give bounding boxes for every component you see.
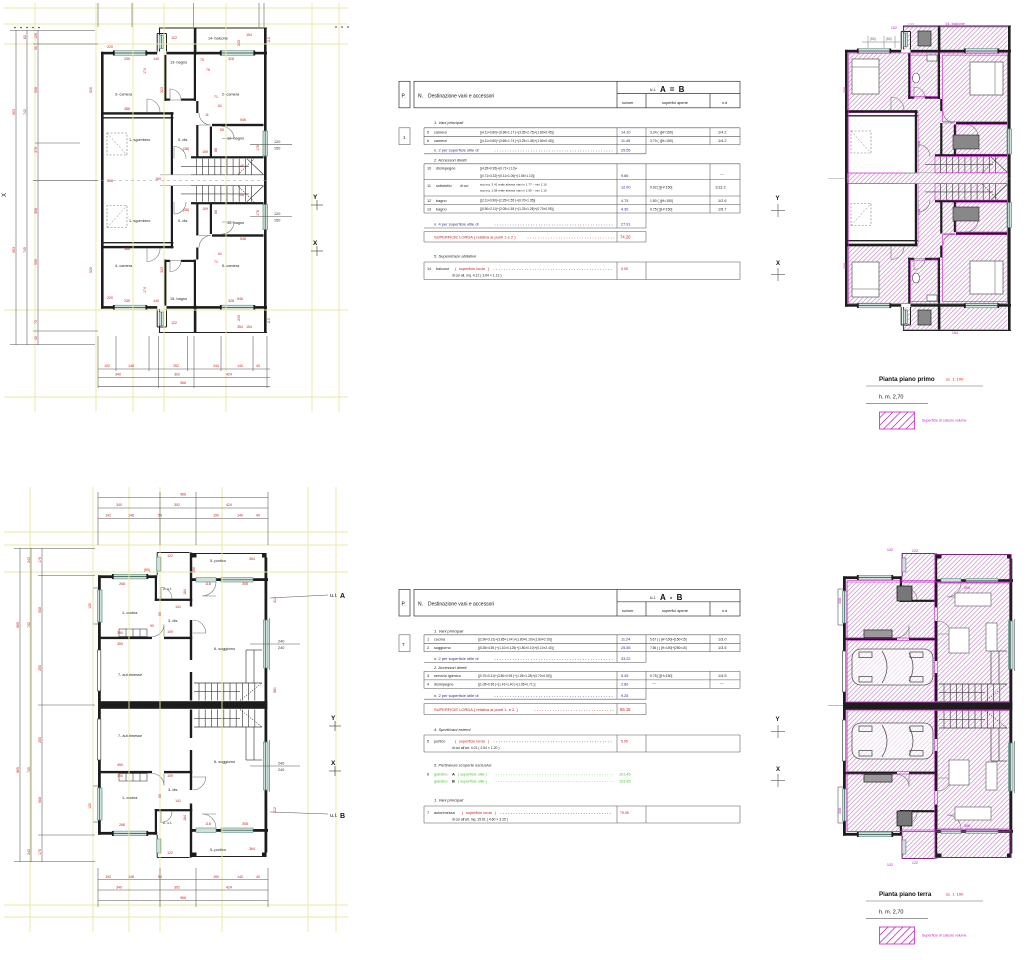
svg-text:[(5.35×4.55 )+(1.10×0.125)+(1.: [(5.35×4.55 )+(1.10×0.125)+(1.80×0.10)+(… xyxy=(478,646,554,650)
svg-text:5. Pertinenze scoperte esclusi: 5. Pertinenze scoperte esclusive xyxy=(434,763,492,768)
svg-text:358: 358 xyxy=(34,208,38,214)
svg-text:1. Vani principali: 1. Vani principali xyxy=(434,798,463,803)
svg-text:Superficie di calcolo volume: Superficie di calcolo volume xyxy=(922,419,967,423)
svg-text:75: 75 xyxy=(206,68,210,72)
svg-text:11: 11 xyxy=(205,113,209,117)
svg-text:12- bagno: 12- bagno xyxy=(227,221,244,225)
svg-text:N.: N. xyxy=(418,602,423,608)
svg-text:178: 178 xyxy=(256,210,260,216)
svg-text:0.75 [ ][H=150]: 0.75 [ ][H=150] xyxy=(650,207,672,211)
svg-text:1- sgombero: 1- sgombero xyxy=(129,138,150,142)
svg-text:7- aut.rimesse: 7- aut.rimesse xyxy=(118,734,142,738)
svg-text:Y: Y xyxy=(776,717,780,723)
svg-text:Destinazione vani e accesso: Destinazione vani e accessori xyxy=(428,93,494,99)
svg-text:di cui all. mq. 4.12 ( 3.64 ×: di cui all. mq. 4.12 ( 3.64 × 1.13 ) xyxy=(452,274,501,278)
svg-text:autorimessa: autorimessa xyxy=(434,811,456,815)
svg-text:[(4.11×0.80)+(3.65×1.74 )+(3.2: [(4.11×0.80)+(3.65×1.74 )+(3.25×1.45)+(1… xyxy=(480,139,554,143)
svg-text:5- portico: 5- portico xyxy=(210,559,226,563)
svg-text:sc. 1: 100: sc. 1: 100 xyxy=(946,892,964,897)
svg-text:140: 140 xyxy=(153,299,159,303)
svg-text:306: 306 xyxy=(964,586,970,590)
svg-text:camera: camera xyxy=(434,139,448,143)
svg-text:27.91: 27.91 xyxy=(621,223,631,227)
svg-text:122: 122 xyxy=(912,861,918,865)
svg-text:u.i.: u.i. xyxy=(330,813,338,819)
svg-text:508: 508 xyxy=(34,87,38,93)
svg-text:148: 148 xyxy=(128,875,134,879)
svg-text:150: 150 xyxy=(192,567,196,573)
svg-text:cucina: cucina xyxy=(434,638,446,642)
svg-text:450: 450 xyxy=(117,642,123,646)
svg-text:388: 388 xyxy=(124,247,130,251)
svg-text:1- cucina: 1- cucina xyxy=(122,611,138,615)
svg-text:74.20: 74.20 xyxy=(620,235,631,240)
svg-text:X: X xyxy=(776,261,780,267)
svg-text:1. Vani principali: 1. Vani principali xyxy=(434,629,463,634)
svg-text:308: 308 xyxy=(843,87,847,93)
svg-text:255: 255 xyxy=(38,665,42,671)
svg-text:390: 390 xyxy=(117,631,123,635)
svg-text:302: 302 xyxy=(174,503,180,507)
svg-text:302: 302 xyxy=(174,372,180,376)
svg-text:103.85: 103.85 xyxy=(619,779,631,783)
svg-text:N.: N. xyxy=(418,93,423,99)
svg-text:h. m. 2,70: h. m. 2,70 xyxy=(879,395,903,401)
svg-text:364: 364 xyxy=(249,847,255,851)
svg-text:174: 174 xyxy=(143,287,147,293)
svg-text:11: 11 xyxy=(427,184,431,188)
svg-text:742: 742 xyxy=(27,622,31,628)
svg-text:42: 42 xyxy=(34,336,38,340)
svg-text:camera: camera xyxy=(434,131,448,135)
svg-text:424: 424 xyxy=(226,503,232,507)
svg-text:235: 235 xyxy=(124,57,130,61)
svg-text:X: X xyxy=(313,240,318,247)
svg-text:102: 102 xyxy=(891,26,897,30)
svg-text:0- dis.: 0- dis. xyxy=(178,138,188,142)
svg-text:120: 120 xyxy=(88,603,92,609)
svg-text:4. Sporti/vani esterni: 4. Sporti/vani esterni xyxy=(434,727,471,732)
svg-text:[(0.70×0.11)+(3.80×0.95 )+(1.2: [(0.70×0.11)+(3.80×0.95 )+(1.25×1.28)+(0… xyxy=(478,674,552,678)
svg-text:1/13.2: 1/13.2 xyxy=(715,186,726,190)
svg-text:55: 55 xyxy=(220,128,224,132)
svg-text:54: 54 xyxy=(158,514,162,518)
svg-text:6: 6 xyxy=(427,773,429,777)
svg-text:508: 508 xyxy=(38,607,42,613)
svg-text:140: 140 xyxy=(237,364,243,368)
svg-text:243: 243 xyxy=(27,557,31,563)
svg-text:bagno: bagno xyxy=(436,207,447,211)
svg-text:122: 122 xyxy=(912,549,918,553)
svg-text:12.00: 12.00 xyxy=(621,186,631,190)
svg-text:235: 235 xyxy=(124,299,130,303)
svg-text:110: 110 xyxy=(267,318,271,324)
svg-text:14- balcone: 14- balcone xyxy=(945,22,965,26)
svg-text:[(0.90×2.11)+(2.05×1.55 )+(1.2: [(0.90×2.11)+(2.05×1.55 )+(1.23×1.28)+(0… xyxy=(480,207,554,211)
svg-text:A = B: A = B xyxy=(660,85,685,94)
svg-text:50: 50 xyxy=(34,46,38,50)
svg-text:1/5.7: 1/5.7 xyxy=(718,207,726,211)
svg-text:9.25: 9.25 xyxy=(621,694,628,698)
svg-text:u.i.: u.i. xyxy=(330,593,338,599)
svg-text:Y: Y xyxy=(331,715,336,722)
svg-text:508: 508 xyxy=(38,797,42,803)
svg-text:B: B xyxy=(452,778,455,783)
svg-text:25.55: 25.55 xyxy=(621,149,631,153)
svg-text:40: 40 xyxy=(256,364,260,368)
svg-text:X: X xyxy=(331,760,336,767)
svg-text:120: 120 xyxy=(274,140,280,144)
svg-text:2: 2 xyxy=(427,646,429,650)
svg-text:164: 164 xyxy=(952,331,958,335)
svg-text:190: 190 xyxy=(213,514,219,518)
svg-text:176: 176 xyxy=(38,849,42,855)
svg-text:328: 328 xyxy=(228,57,234,61)
svg-text:5.05: 5.05 xyxy=(621,267,628,271)
svg-text:745: 745 xyxy=(27,767,31,773)
svg-text:25.55: 25.55 xyxy=(621,646,631,650)
svg-text:546: 546 xyxy=(240,118,246,122)
svg-text:102: 102 xyxy=(887,863,893,867)
svg-text:5.05: 5.05 xyxy=(621,740,628,744)
svg-text:u.i.: u.i. xyxy=(650,87,656,92)
svg-text:soggiorno: soggiorno xyxy=(434,646,451,650)
svg-text:[(4.35×0.95)+(0.71×1.10)+: [(4.35×0.95)+(0.71×1.10)+ xyxy=(480,166,518,170)
svg-text:3- dis.: 3- dis. xyxy=(168,788,178,792)
svg-text:184: 184 xyxy=(183,815,187,821)
svg-text:1/4.2: 1/4.2 xyxy=(718,131,726,135)
svg-text:450: 450 xyxy=(117,763,123,767)
svg-text:240: 240 xyxy=(278,762,284,766)
svg-text:140: 140 xyxy=(237,514,243,518)
svg-text:354: 354 xyxy=(237,325,243,329)
svg-text:412: 412 xyxy=(273,597,277,603)
svg-text:328: 328 xyxy=(228,299,234,303)
svg-text:33.22: 33.22 xyxy=(621,657,631,661)
svg-text:122: 122 xyxy=(908,23,914,27)
svg-text:7.56 ( ) [H=150]+[250×15]: 7.56 ( ) [H=150]+[250×15] xyxy=(650,646,687,650)
svg-text:sup.mq. 3.41 reale altezza: sup.mq. 3.41 reale altezza max m 1.77 – … xyxy=(480,183,547,187)
svg-text:X: X xyxy=(2,193,8,197)
svg-text:378: 378 xyxy=(34,147,38,153)
svg-text:358: 358 xyxy=(107,179,113,183)
svg-text:745: 745 xyxy=(23,247,27,253)
svg-text:72: 72 xyxy=(34,320,38,324)
svg-text:giardino: giardino xyxy=(434,779,448,783)
svg-text:192: 192 xyxy=(105,875,111,879)
svg-text:178: 178 xyxy=(256,145,260,151)
svg-text:2- camera: 2- camera xyxy=(222,93,240,97)
svg-text:40: 40 xyxy=(256,875,260,879)
svg-text:90: 90 xyxy=(150,624,154,628)
svg-text:546: 546 xyxy=(240,237,246,241)
svg-text:61: 61 xyxy=(218,252,222,256)
svg-text:966: 966 xyxy=(180,381,186,385)
svg-text:n.d: n.d xyxy=(722,101,727,105)
svg-text:176: 176 xyxy=(38,557,42,563)
svg-text:268: 268 xyxy=(119,823,125,827)
svg-text:Pianta piano terra: Pianta piano terra xyxy=(879,891,932,898)
svg-text:n. 2 per superficie utile di: n. 2 per superficie utile di xyxy=(434,148,479,153)
svg-text:2- c.l.: 2- c.l. xyxy=(163,821,172,825)
svg-text:(50): (50) xyxy=(870,37,876,41)
svg-text:101.45: 101.45 xyxy=(619,773,631,777)
svg-text:SUPERFICIE LORDA ( relativa a: SUPERFICIE LORDA ( relativa ai punti 1. … xyxy=(434,707,518,712)
svg-text:14: 14 xyxy=(427,267,431,271)
svg-text:n.d: n.d xyxy=(722,609,727,613)
svg-text:109: 109 xyxy=(167,630,173,634)
svg-text:150: 150 xyxy=(274,147,280,151)
svg-text:Destinazione vani e accesso: Destinazione vani e accessori xyxy=(428,602,494,608)
svg-text:sottotetto: sottotetto xyxy=(436,184,452,188)
svg-text:7: 7 xyxy=(427,811,429,815)
svg-text:40: 40 xyxy=(256,514,260,518)
svg-text:742: 742 xyxy=(23,109,27,115)
svg-text:122: 122 xyxy=(171,321,177,325)
svg-text:192: 192 xyxy=(105,514,111,518)
svg-text:141: 141 xyxy=(175,799,181,803)
svg-text:P.: P. xyxy=(402,93,406,99)
svg-text:balcone: balcone xyxy=(436,267,449,271)
svg-text:122: 122 xyxy=(167,554,173,558)
svg-text:268: 268 xyxy=(119,582,125,586)
svg-text:6- soggiorno: 6- soggiorno xyxy=(214,647,235,651)
svg-text:su/smr: su/smr xyxy=(622,101,634,105)
svg-text:n. 2 per superficie utile di: n. 2 per superficie utile di xyxy=(434,656,479,661)
svg-text:superfici aperte: superfici aperte xyxy=(662,609,688,613)
svg-text:79.05: 79.05 xyxy=(620,811,629,815)
svg-text:340: 340 xyxy=(116,503,122,507)
svg-text:SUPERFICIE LORDA ( relativa a: SUPERFICIE LORDA ( relativa ai punti 1 e… xyxy=(434,235,516,240)
svg-text:150: 150 xyxy=(274,219,280,223)
svg-text:308: 308 xyxy=(838,808,842,814)
svg-text:154: 154 xyxy=(246,325,252,329)
svg-text:6- soggiorno: 6- soggiorno xyxy=(214,760,235,764)
svg-text:1/4.2: 1/4.2 xyxy=(718,139,726,143)
svg-text:148: 148 xyxy=(128,364,134,368)
svg-text:154: 154 xyxy=(246,33,252,37)
svg-text:5: 5 xyxy=(427,740,429,744)
svg-text:3- dis.: 3- dis. xyxy=(168,619,178,623)
svg-text:340: 340 xyxy=(116,886,122,890)
svg-text:di cui all'art. 4.01 ( 2.54 ×: di cui all'art. 4.01 ( 2.54 × 1.20 ) xyxy=(452,746,499,750)
svg-text:13: 13 xyxy=(427,207,431,211)
svg-text:663: 663 xyxy=(12,247,16,253)
svg-text:120: 120 xyxy=(274,212,280,216)
svg-text:Superficie di calcolo volume: Superficie di calcolo volume xyxy=(922,934,967,938)
svg-text:5- portico: 5- portico xyxy=(210,848,226,852)
svg-text:A - B: A - B xyxy=(660,593,683,602)
svg-text:240: 240 xyxy=(278,646,284,650)
svg-text:[(2.90×3.31)+(3.85×1.04 )+(1.8: [(2.90×3.31)+(3.85×1.04 )+(1.80×0.10)+(1… xyxy=(478,637,552,641)
svg-text:disimpegno: disimpegno xyxy=(434,683,453,687)
svg-text:118: 118 xyxy=(205,822,211,826)
svg-text:n. 2 per superficie utile di: n. 2 per superficie utile di xyxy=(434,693,479,698)
svg-text:servizio igienico: servizio igienico xyxy=(434,674,461,678)
svg-text:220: 220 xyxy=(107,296,113,300)
svg-text:X: X xyxy=(776,767,780,773)
svg-text:243: 243 xyxy=(27,849,31,855)
svg-text:55: 55 xyxy=(158,612,162,616)
svg-text:120: 120 xyxy=(88,803,92,809)
svg-text:B: B xyxy=(340,813,345,820)
svg-text:4: 4 xyxy=(427,683,429,687)
svg-text:3.24 ( )[H=150]: 3.24 ( )[H=150] xyxy=(650,131,673,135)
svg-text:364: 364 xyxy=(249,557,255,561)
svg-text:1/3.5: 1/3.5 xyxy=(718,646,726,650)
svg-text:(50): (50) xyxy=(144,568,150,572)
svg-text:bagno: bagno xyxy=(436,199,447,203)
svg-text:82: 82 xyxy=(23,35,27,39)
svg-text:546: 546 xyxy=(237,297,243,301)
svg-text:14.10: 14.10 xyxy=(621,131,631,135)
svg-text:88: 88 xyxy=(214,148,218,152)
svg-text:243: 243 xyxy=(237,315,241,321)
svg-text:109: 109 xyxy=(167,774,173,778)
svg-text:75: 75 xyxy=(200,58,204,62)
svg-text:0.92 [ ][H=150]: 0.92 [ ][H=150] xyxy=(650,186,672,190)
svg-text:superficie lorda: superficie lorda xyxy=(466,811,493,815)
svg-text:( superficie utile ): ( superficie utile ) xyxy=(458,779,488,783)
svg-text:12- bagno: 12- bagno xyxy=(227,137,244,141)
svg-text:di cui:: di cui: xyxy=(460,184,469,188)
svg-text:865: 865 xyxy=(16,622,20,628)
svg-text:110: 110 xyxy=(267,37,271,43)
svg-text:102: 102 xyxy=(104,364,110,368)
svg-text:1- sgombero: 1- sgombero xyxy=(129,219,150,223)
svg-text:308: 308 xyxy=(242,582,248,586)
svg-text:u.i.: u.i. xyxy=(650,595,656,600)
svg-text:0- dis.: 0- dis. xyxy=(178,219,188,223)
svg-text:[(4.11×0.80)+(3.96×1.17 )+(3.3: [(4.11×0.80)+(3.96×1.17 )+(3.35×2.75)+(1… xyxy=(480,130,554,134)
svg-text:174: 174 xyxy=(143,68,147,74)
svg-text:7- aut.rimesse: 7- aut.rimesse xyxy=(118,673,142,677)
svg-text:2.80: 2.80 xyxy=(621,683,628,687)
svg-text:1- cucina: 1- cucina xyxy=(122,796,138,800)
svg-text:3.70 ( )[H=150]: 3.70 ( )[H=150] xyxy=(650,139,673,143)
svg-text:5.67 ( ) [H=150]+[150×15]: 5.67 ( ) [H=150]+[150×15] xyxy=(650,638,687,642)
svg-text:102: 102 xyxy=(887,548,893,552)
svg-text:5.45: 5.45 xyxy=(621,674,628,678)
svg-text:portico: portico xyxy=(434,740,445,744)
svg-text:P.: P. xyxy=(402,602,406,608)
svg-text:308: 308 xyxy=(242,822,248,826)
svg-text:3- camera: 3- camera xyxy=(115,93,133,97)
svg-text:11.45: 11.45 xyxy=(621,139,630,143)
svg-text:sup.mq. 1.58 reale altezza: sup.mq. 1.58 reale altezza max m 1.90 – … xyxy=(480,189,547,193)
svg-text:[(1.05×0.95 )+(1.41×1.40 )+(1.: [(1.05×0.95 )+(1.41×1.40 )+(1.05×0.71 )] xyxy=(478,682,535,686)
svg-text:306: 306 xyxy=(931,257,937,261)
svg-text:1/2.6: 1/2.6 xyxy=(718,199,726,203)
svg-text:di cui all'art. mq. 15.61 ( 4: di cui all'art. mq. 15.61 ( 4.60 × 3.25 … xyxy=(452,817,508,821)
svg-text:71: 71 xyxy=(214,95,218,99)
svg-text:61: 61 xyxy=(218,104,222,108)
svg-text:3: 3 xyxy=(427,674,429,678)
svg-text:4.30: 4.30 xyxy=(621,207,628,211)
svg-text:243: 243 xyxy=(237,40,241,46)
svg-text:535: 535 xyxy=(34,259,38,265)
svg-text:140: 140 xyxy=(237,875,243,879)
svg-text:88: 88 xyxy=(214,210,218,214)
svg-text:10: 10 xyxy=(427,167,431,171)
svg-text:881: 881 xyxy=(273,687,277,693)
svg-text:252: 252 xyxy=(173,364,179,368)
svg-text:54: 54 xyxy=(158,875,162,879)
svg-text:306: 306 xyxy=(931,96,937,100)
svg-text:(38): (38) xyxy=(183,147,189,151)
svg-text:55.15: 55.15 xyxy=(620,707,631,712)
svg-text:Y: Y xyxy=(313,194,318,201)
svg-text:5: 5 xyxy=(427,131,429,135)
svg-text:390: 390 xyxy=(117,774,123,778)
svg-text:superficie lorda: superficie lorda xyxy=(459,267,486,271)
svg-text:12: 12 xyxy=(427,199,431,203)
svg-text:4.75: 4.75 xyxy=(621,199,628,203)
svg-text:146: 146 xyxy=(238,193,244,197)
svg-text:220: 220 xyxy=(107,45,113,49)
svg-text:55: 55 xyxy=(158,794,162,798)
svg-text:1/4.5: 1/4.5 xyxy=(718,674,726,678)
svg-text:4- camera: 4- camera xyxy=(115,264,133,268)
svg-text:348: 348 xyxy=(917,209,921,215)
svg-text:240: 240 xyxy=(278,640,284,644)
svg-text:su/smr: su/smr xyxy=(622,609,634,613)
svg-text:122: 122 xyxy=(171,36,177,40)
svg-text:superfici aperte: superfici aperte xyxy=(662,101,688,105)
svg-text:424: 424 xyxy=(226,372,232,376)
svg-text:255: 255 xyxy=(38,737,42,743)
svg-text:(50): (50) xyxy=(886,37,892,41)
svg-text:[(0.71×3.32)+(0.11×1.06)+(1.05: [(0.71×3.32)+(0.11×1.06)+(1.05×1.10)] xyxy=(480,174,535,178)
svg-text:5. Superetraze abitative: 5. Superetraze abitative xyxy=(434,254,477,259)
svg-text:5- camera: 5- camera xyxy=(222,264,240,268)
svg-text:308: 308 xyxy=(838,598,842,604)
svg-text:148: 148 xyxy=(128,514,134,518)
svg-text:308: 308 xyxy=(843,263,847,269)
svg-text:sc. 1: 100: sc. 1: 100 xyxy=(946,377,964,382)
svg-text:340: 340 xyxy=(115,372,121,376)
svg-text:6: 6 xyxy=(427,139,429,143)
svg-text:giardino: giardino xyxy=(434,773,448,777)
svg-text:0.75 [ ][H=150]: 0.75 [ ][H=150] xyxy=(650,674,672,678)
svg-text:240: 240 xyxy=(278,768,284,772)
svg-text:663: 663 xyxy=(12,109,16,115)
svg-text:disimpegno: disimpegno xyxy=(436,167,455,171)
svg-text:306: 306 xyxy=(964,824,970,828)
svg-text:412: 412 xyxy=(273,807,277,813)
svg-text:[(2.11×0.90)+(2.25×1.55 )+(0.7: [(2.11×0.90)+(2.25×1.55 )+(0.70×1.35)] xyxy=(480,199,535,203)
svg-text:865: 865 xyxy=(16,767,20,773)
svg-text:118: 118 xyxy=(205,582,211,586)
svg-text:2- c.l.: 2- c.l. xyxy=(163,587,172,591)
svg-text:184: 184 xyxy=(183,589,187,595)
svg-text:244: 244 xyxy=(213,364,219,368)
svg-text:superficie lorda: superficie lorda xyxy=(459,740,486,744)
svg-text:14- balcone: 14- balcone xyxy=(208,37,228,41)
svg-text:(38): (38) xyxy=(183,208,189,212)
svg-text:13- bagno: 13- bagno xyxy=(170,61,187,65)
svg-text:190: 190 xyxy=(213,875,219,879)
svg-text:966: 966 xyxy=(180,896,186,900)
svg-text:11.24: 11.24 xyxy=(621,638,630,642)
svg-text:( superficie utile ): ( superficie utile ) xyxy=(458,773,488,777)
svg-text:Y: Y xyxy=(776,196,780,202)
svg-text:A: A xyxy=(452,772,455,777)
svg-text:520: 520 xyxy=(89,87,93,93)
svg-text:966: 966 xyxy=(180,493,186,497)
svg-text:71: 71 xyxy=(214,260,218,264)
svg-text:146: 146 xyxy=(238,164,244,168)
